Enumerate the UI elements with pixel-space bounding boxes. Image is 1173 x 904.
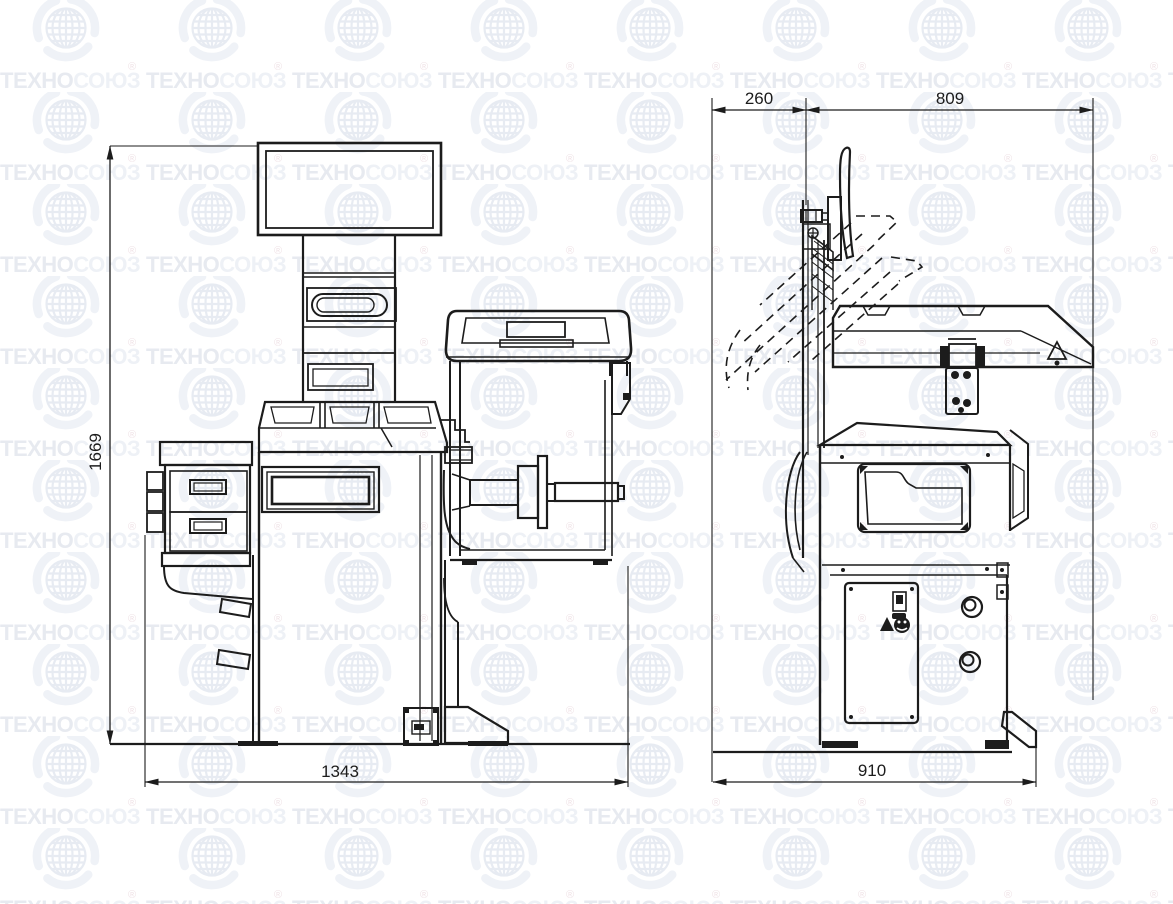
plug-symbol-icon xyxy=(894,617,910,633)
drawing-canvas: ТЕХНОСОЮЗ ® xyxy=(0,0,1173,904)
dimension-label-upper-depth: 809 xyxy=(936,89,964,108)
technical-drawing: ТЕХНОСОЮЗ ® xyxy=(0,0,1173,904)
watermark-tile-layer xyxy=(0,0,1173,904)
foot-pad xyxy=(985,740,1009,749)
foot-pad xyxy=(822,741,858,748)
dimension-label-height: 1669 xyxy=(86,433,105,471)
dimension-label-base-depth: 910 xyxy=(858,761,886,780)
dimension-label-rear-clearance: 260 xyxy=(745,89,773,108)
dimension-label-width: 1343 xyxy=(321,762,359,781)
